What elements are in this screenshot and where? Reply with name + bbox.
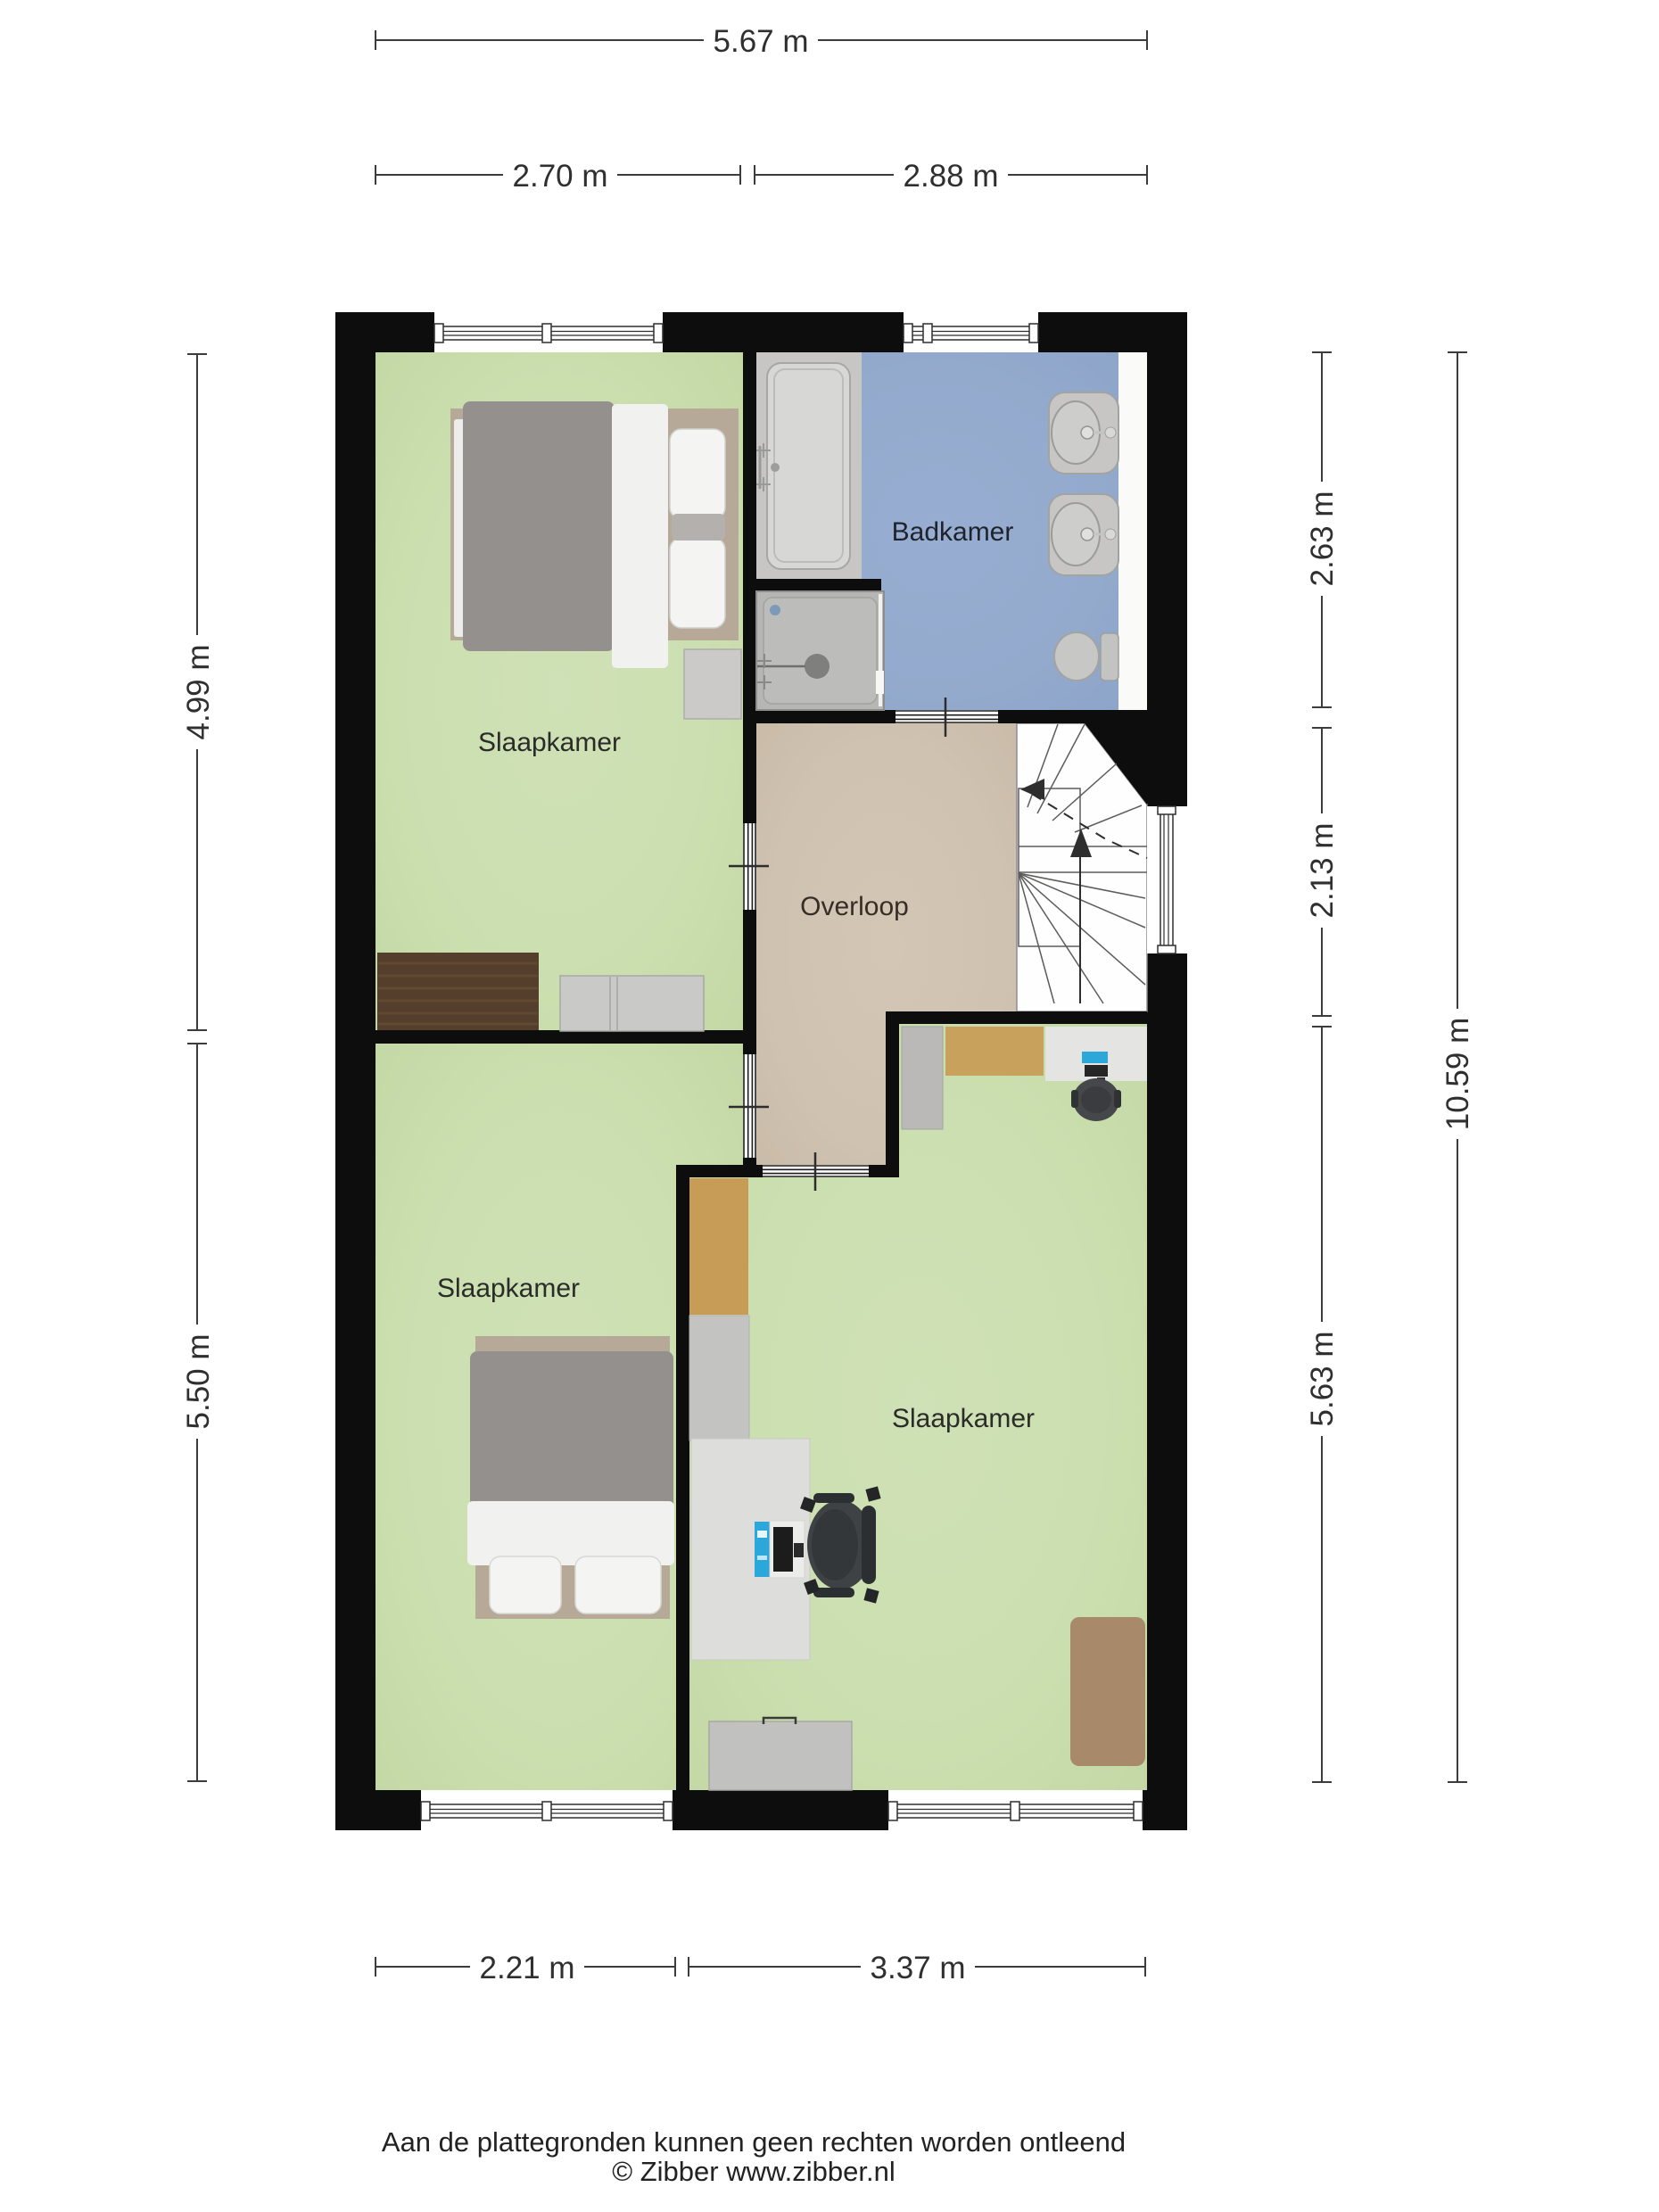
svg-text:2.63 m: 2.63 m (1305, 491, 1340, 587)
svg-text:Overloop: Overloop (800, 892, 909, 921)
svg-text:5.67 m: 5.67 m (714, 24, 809, 59)
svg-text:2.13 m: 2.13 m (1305, 823, 1340, 919)
svg-text:Slaapkamer: Slaapkamer (437, 1274, 580, 1303)
svg-text:3.37 m: 3.37 m (871, 1951, 966, 1985)
svg-text:© Zibber www.zibber.nl: © Zibber www.zibber.nl (612, 2156, 895, 2187)
svg-text:2.88 m: 2.88 m (904, 159, 999, 194)
svg-text:Slaapkamer: Slaapkamer (892, 1404, 1035, 1433)
svg-text:Aan de plattegronden kunnen ge: Aan de plattegronden kunnen geen rechten… (382, 2126, 1126, 2158)
svg-text:5.50 m: 5.50 m (181, 1334, 216, 1430)
svg-text:5.63 m: 5.63 m (1305, 1332, 1340, 1427)
svg-text:10.59 m: 10.59 m (1440, 1018, 1475, 1130)
svg-text:2.21 m: 2.21 m (480, 1951, 575, 1985)
svg-text:2.70 m: 2.70 m (513, 159, 608, 194)
svg-text:4.99 m: 4.99 m (181, 645, 216, 740)
svg-text:Badkamer: Badkamer (892, 517, 1014, 547)
svg-text:Slaapkamer: Slaapkamer (478, 728, 621, 757)
